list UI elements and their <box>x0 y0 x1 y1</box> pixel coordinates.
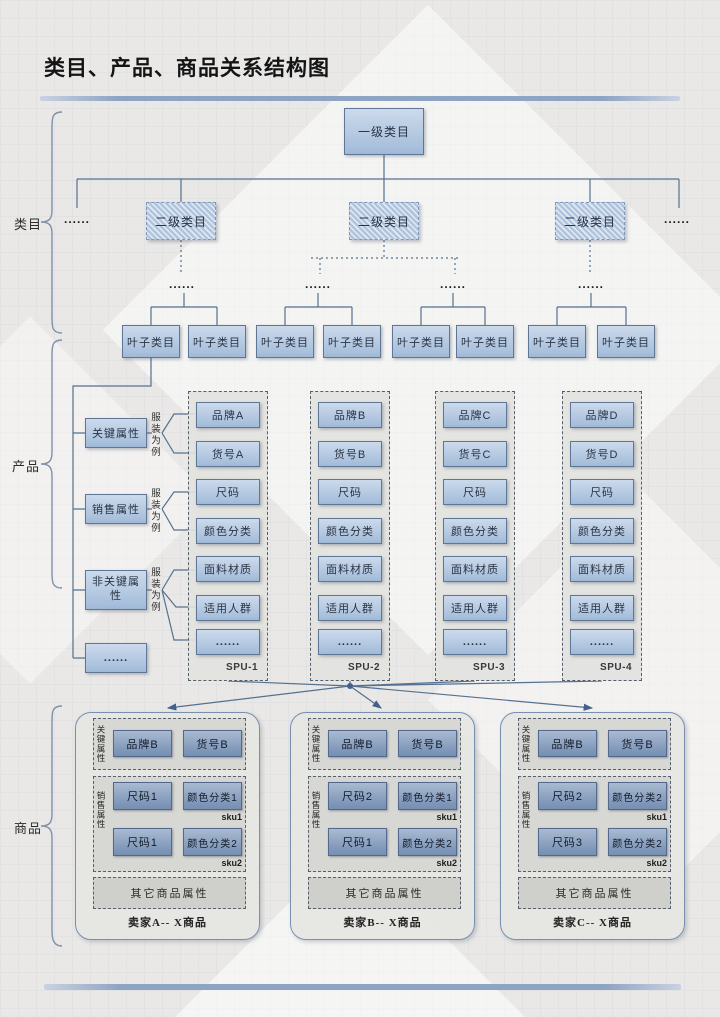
spu-label: SPU-4 <box>600 662 632 673</box>
sku-size-box: 尺码1 <box>113 828 172 856</box>
sku-tag: sku2 <box>398 858 457 868</box>
ellipsis-group: ...... <box>569 277 613 291</box>
spu-item: 颜色分类 <box>443 518 507 544</box>
sku-tag: sku2 <box>608 858 667 868</box>
ellipsis-right: ...... <box>658 212 696 226</box>
note-clothing-example: 服装为例 <box>148 483 161 539</box>
spu-item: 适用人群 <box>443 595 507 621</box>
junction-dot <box>347 683 353 689</box>
sales-attr-group-label: 销售属性 <box>310 782 321 838</box>
sales-attr-group-label: 销售属性 <box>95 782 106 838</box>
section-label-product: 产品 <box>12 456 40 475</box>
spu-item: 品牌B <box>318 402 382 428</box>
key-attr-group-label: 关键属性 <box>310 720 321 768</box>
node-leaf-category: 叶子类目 <box>256 325 314 358</box>
other-attrs-box: 其它商品属性 <box>308 877 461 909</box>
spu-item: 面料材质 <box>570 556 634 582</box>
node-level2-category: 二级类目 <box>349 202 419 240</box>
sku-tag: sku1 <box>608 812 667 822</box>
sku-size-box: 尺码3 <box>538 828 597 856</box>
note-clothing-example: 服装为例 <box>148 407 161 463</box>
ellipsis-left: ...... <box>58 212 96 226</box>
node-leaf-category: 叶子类目 <box>392 325 450 358</box>
sku-color-box: 颜色分类1 <box>398 782 457 810</box>
node-leaf-category: 叶子类目 <box>456 325 514 358</box>
attr-box-sales: 销售属性 <box>85 494 147 524</box>
brace-product <box>41 340 62 588</box>
seller-card-title: 卖家A-- X商品 <box>75 914 260 930</box>
ellipsis-group: ...... <box>431 277 475 291</box>
other-attrs-box: 其它商品属性 <box>518 877 671 909</box>
section-label-goods: 商品 <box>14 818 42 837</box>
card-itemno-box: 货号B <box>183 730 242 757</box>
spu-label: SPU-3 <box>473 662 505 673</box>
sku-tag: sku2 <box>183 858 242 868</box>
node-level1-category: 一级类目 <box>344 108 424 155</box>
spu-item: ...... <box>196 629 260 655</box>
spu-item: 适用人群 <box>318 595 382 621</box>
card-brand-box: 品牌B <box>538 730 597 757</box>
node-leaf-category: 叶子类目 <box>597 325 655 358</box>
spu-item: 货号B <box>318 441 382 467</box>
spu-item: 尺码 <box>443 479 507 505</box>
spu-item: 面料材质 <box>443 556 507 582</box>
key-attr-group-label: 关键属性 <box>95 720 106 768</box>
card-itemno-box: 货号B <box>398 730 457 757</box>
spu-item: ...... <box>443 629 507 655</box>
sku-tag: sku1 <box>398 812 457 822</box>
ellipsis-group: ...... <box>296 277 340 291</box>
other-attrs-box: 其它商品属性 <box>93 877 246 909</box>
node-leaf-category: 叶子类目 <box>122 325 180 358</box>
spu-item: 尺码 <box>196 479 260 505</box>
spu-item: 尺码 <box>570 479 634 505</box>
sku-color-box: 颜色分类2 <box>398 828 457 856</box>
spu-label: SPU-2 <box>348 662 380 673</box>
spu-item: 品牌D <box>570 402 634 428</box>
spu-item: 颜色分类 <box>570 518 634 544</box>
spu-item: 颜色分类 <box>196 518 260 544</box>
sku-size-box: 尺码2 <box>328 782 387 810</box>
spu-item: 颜色分类 <box>318 518 382 544</box>
title-underline <box>40 96 680 101</box>
card-brand-box: 品牌B <box>328 730 387 757</box>
spu-item: 品牌C <box>443 402 507 428</box>
node-leaf-category: 叶子类目 <box>323 325 381 358</box>
spu-label: SPU-1 <box>226 662 258 673</box>
attr-box-ellipsis: ...... <box>85 643 147 673</box>
sku-color-box: 颜色分类2 <box>608 828 667 856</box>
seller-card-title: 卖家C-- X商品 <box>500 914 685 930</box>
sku-tag: sku1 <box>183 812 242 822</box>
node-leaf-category: 叶子类目 <box>188 325 246 358</box>
spu-item: 适用人群 <box>196 595 260 621</box>
spu-item: 货号A <box>196 441 260 467</box>
node-level2-category: 二级类目 <box>146 202 216 240</box>
brace-goods <box>41 706 62 946</box>
card-itemno-box: 货号B <box>608 730 667 757</box>
spu-item: ...... <box>318 629 382 655</box>
sku-size-box: 尺码2 <box>538 782 597 810</box>
section-label-category: 类目 <box>14 214 42 233</box>
spu-item: 货号C <box>443 441 507 467</box>
sku-color-box: 颜色分类2 <box>183 828 242 856</box>
sku-color-box: 颜色分类2 <box>608 782 667 810</box>
spu-item: 适用人群 <box>570 595 634 621</box>
footer-bar <box>44 984 681 990</box>
spu-item: 品牌A <box>196 402 260 428</box>
spu-item: 面料材质 <box>196 556 260 582</box>
spu-item: 面料材质 <box>318 556 382 582</box>
sku-size-box: 尺码1 <box>328 828 387 856</box>
sku-size-box: 尺码1 <box>113 782 172 810</box>
sales-attr-group-label: 销售属性 <box>520 782 531 838</box>
spu-item: ...... <box>570 629 634 655</box>
ellipsis-group: ...... <box>160 277 204 291</box>
diagram-canvas: 类目、产品、商品关系结构图 类目 产品 商品 一级类目 ...... .....… <box>0 0 720 1017</box>
node-level2-category: 二级类目 <box>555 202 625 240</box>
node-leaf-category: 叶子类目 <box>528 325 586 358</box>
spu-item: 尺码 <box>318 479 382 505</box>
attr-box-key: 关键属性 <box>85 418 147 448</box>
page-title: 类目、产品、商品关系结构图 <box>44 52 330 82</box>
seller-card-title: 卖家B-- X商品 <box>290 914 475 930</box>
note-clothing-example: 服装为例 <box>148 562 161 618</box>
attr-box-nonkey: 非关键属性 <box>85 570 147 610</box>
spu-item: 货号D <box>570 441 634 467</box>
key-attr-group-label: 关键属性 <box>520 720 531 768</box>
sku-color-box: 颜色分类1 <box>183 782 242 810</box>
card-brand-box: 品牌B <box>113 730 172 757</box>
